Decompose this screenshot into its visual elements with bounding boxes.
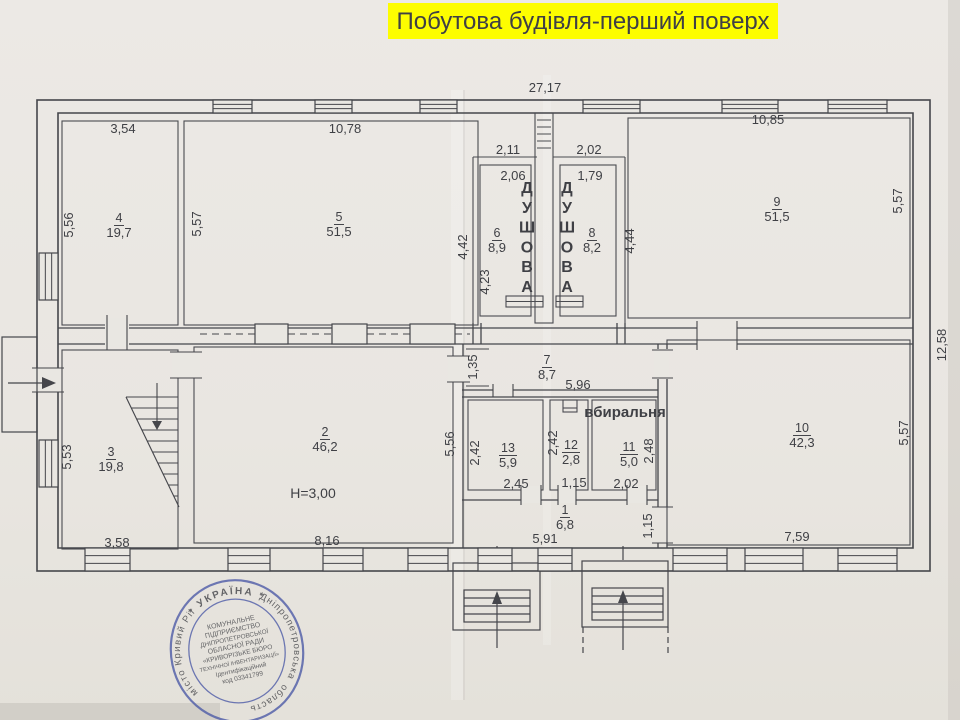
room-number: 10 [795,421,809,435]
room-number: 5 [336,210,343,224]
photo-edge-shade [0,703,220,720]
dim-label: 4,23 [477,269,492,294]
dim-label: 5,53 [59,444,74,469]
dim-label: 1,15 [640,513,655,538]
dim-label: 12,58 [934,329,949,362]
dim-label: 4,42 [455,234,470,259]
shower-label-letter: Ш [559,220,575,237]
window [478,548,512,571]
photo-edge-shade [948,0,960,720]
window [838,548,897,571]
dim-label: 2,11 [496,142,520,157]
window [39,253,58,300]
shower-label-letter: В [561,259,573,276]
window [39,440,58,487]
annotation-text: H=3,00 [290,485,336,501]
dim-label: 2,45 [503,476,528,491]
room-area: 8,9 [488,240,506,255]
room-number: 4 [116,211,123,225]
room-area: 5,9 [499,455,517,470]
room-label: 115,0 [620,440,638,469]
window [213,100,252,113]
window [408,548,448,571]
room-area: 51,5 [326,224,351,239]
dim-label: 1,79 [577,168,602,183]
dim-label: 7,59 [784,529,809,544]
dim-label: 2,42 [467,440,482,465]
dim-label: 1,35 [465,354,480,379]
window [315,100,352,113]
dim-label: 3,54 [110,121,135,136]
window [228,548,270,571]
floor-plan-svg: Побутова будівля-перший поверх [0,0,960,720]
dim-label: 8,16 [314,533,339,548]
room-area: 19,8 [98,459,123,474]
window [673,548,727,571]
dim-label: 10,85 [752,112,785,127]
dim-label: 1,15 [561,475,586,490]
room-number: 13 [501,441,515,455]
dim-label: 5,91 [532,531,557,546]
shower-label-letter: У [522,200,533,217]
room-number: 12 [564,438,578,452]
room-number: 3 [108,445,115,459]
room-area: 6,8 [556,517,574,532]
dim-label: 5,96 [565,377,590,392]
shower-label-letter: Ш [519,220,535,237]
room-area: 51,5 [764,209,789,224]
window [745,548,803,571]
shower-label-letter: А [521,279,533,296]
room-area: 8,7 [538,367,556,382]
scanned-floor-plan-page: Побутова будівля-перший поверх [0,0,960,720]
shower-label-letter: У [562,200,573,217]
dim-label: 10,78 [329,121,362,136]
page-title: Побутова будівля-перший поверх [396,8,769,35]
dim-label: 5,57 [896,420,911,445]
window [323,548,363,571]
room-area: 19,7 [106,225,131,240]
dim-label: 27,17 [529,80,562,95]
window [828,100,887,113]
paper-background [0,0,960,720]
window [583,100,640,113]
dim-label: 5,57 [890,188,905,213]
dim-label: 5,56 [61,212,76,237]
shower-label-letter: О [521,239,533,256]
shower-label-letter: В [521,259,533,276]
room-area: 46,2 [312,439,337,454]
room-label: 135,9 [499,441,517,470]
dim-label: 2,42 [545,430,560,455]
room-number: 1 [562,503,569,517]
room-number: 6 [494,226,501,240]
window [538,548,572,571]
room-label: 122,8 [562,438,580,467]
shower-label-letter: А [561,279,573,296]
window [420,100,457,113]
dim-label: 5,56 [442,431,457,456]
annotation-text: вбиральня [584,404,666,421]
room-number: 7 [544,353,551,367]
dim-label: 3,58 [104,535,129,550]
room-number: 2 [322,425,329,439]
dim-label: 2,02 [613,476,638,491]
room-number: 8 [589,226,596,240]
shower-label-letter: О [561,239,573,256]
title-banner: Побутова будівля-перший поверх [388,3,778,39]
room-area: 5,0 [620,454,638,469]
room-area: 42,3 [789,435,814,450]
dim-label: 2,02 [576,142,601,157]
dim-label: 4,44 [622,228,637,253]
room-number: 11 [623,440,636,454]
dim-label: 2,48 [641,438,656,463]
shower-label-letter: Д [561,180,573,197]
dim-label: 5,57 [189,211,204,236]
window [85,548,130,571]
room-number: 9 [774,195,781,209]
room-area: 8,2 [583,240,601,255]
room-area: 2,8 [562,452,580,467]
shower-label-letter: Д [521,180,533,197]
